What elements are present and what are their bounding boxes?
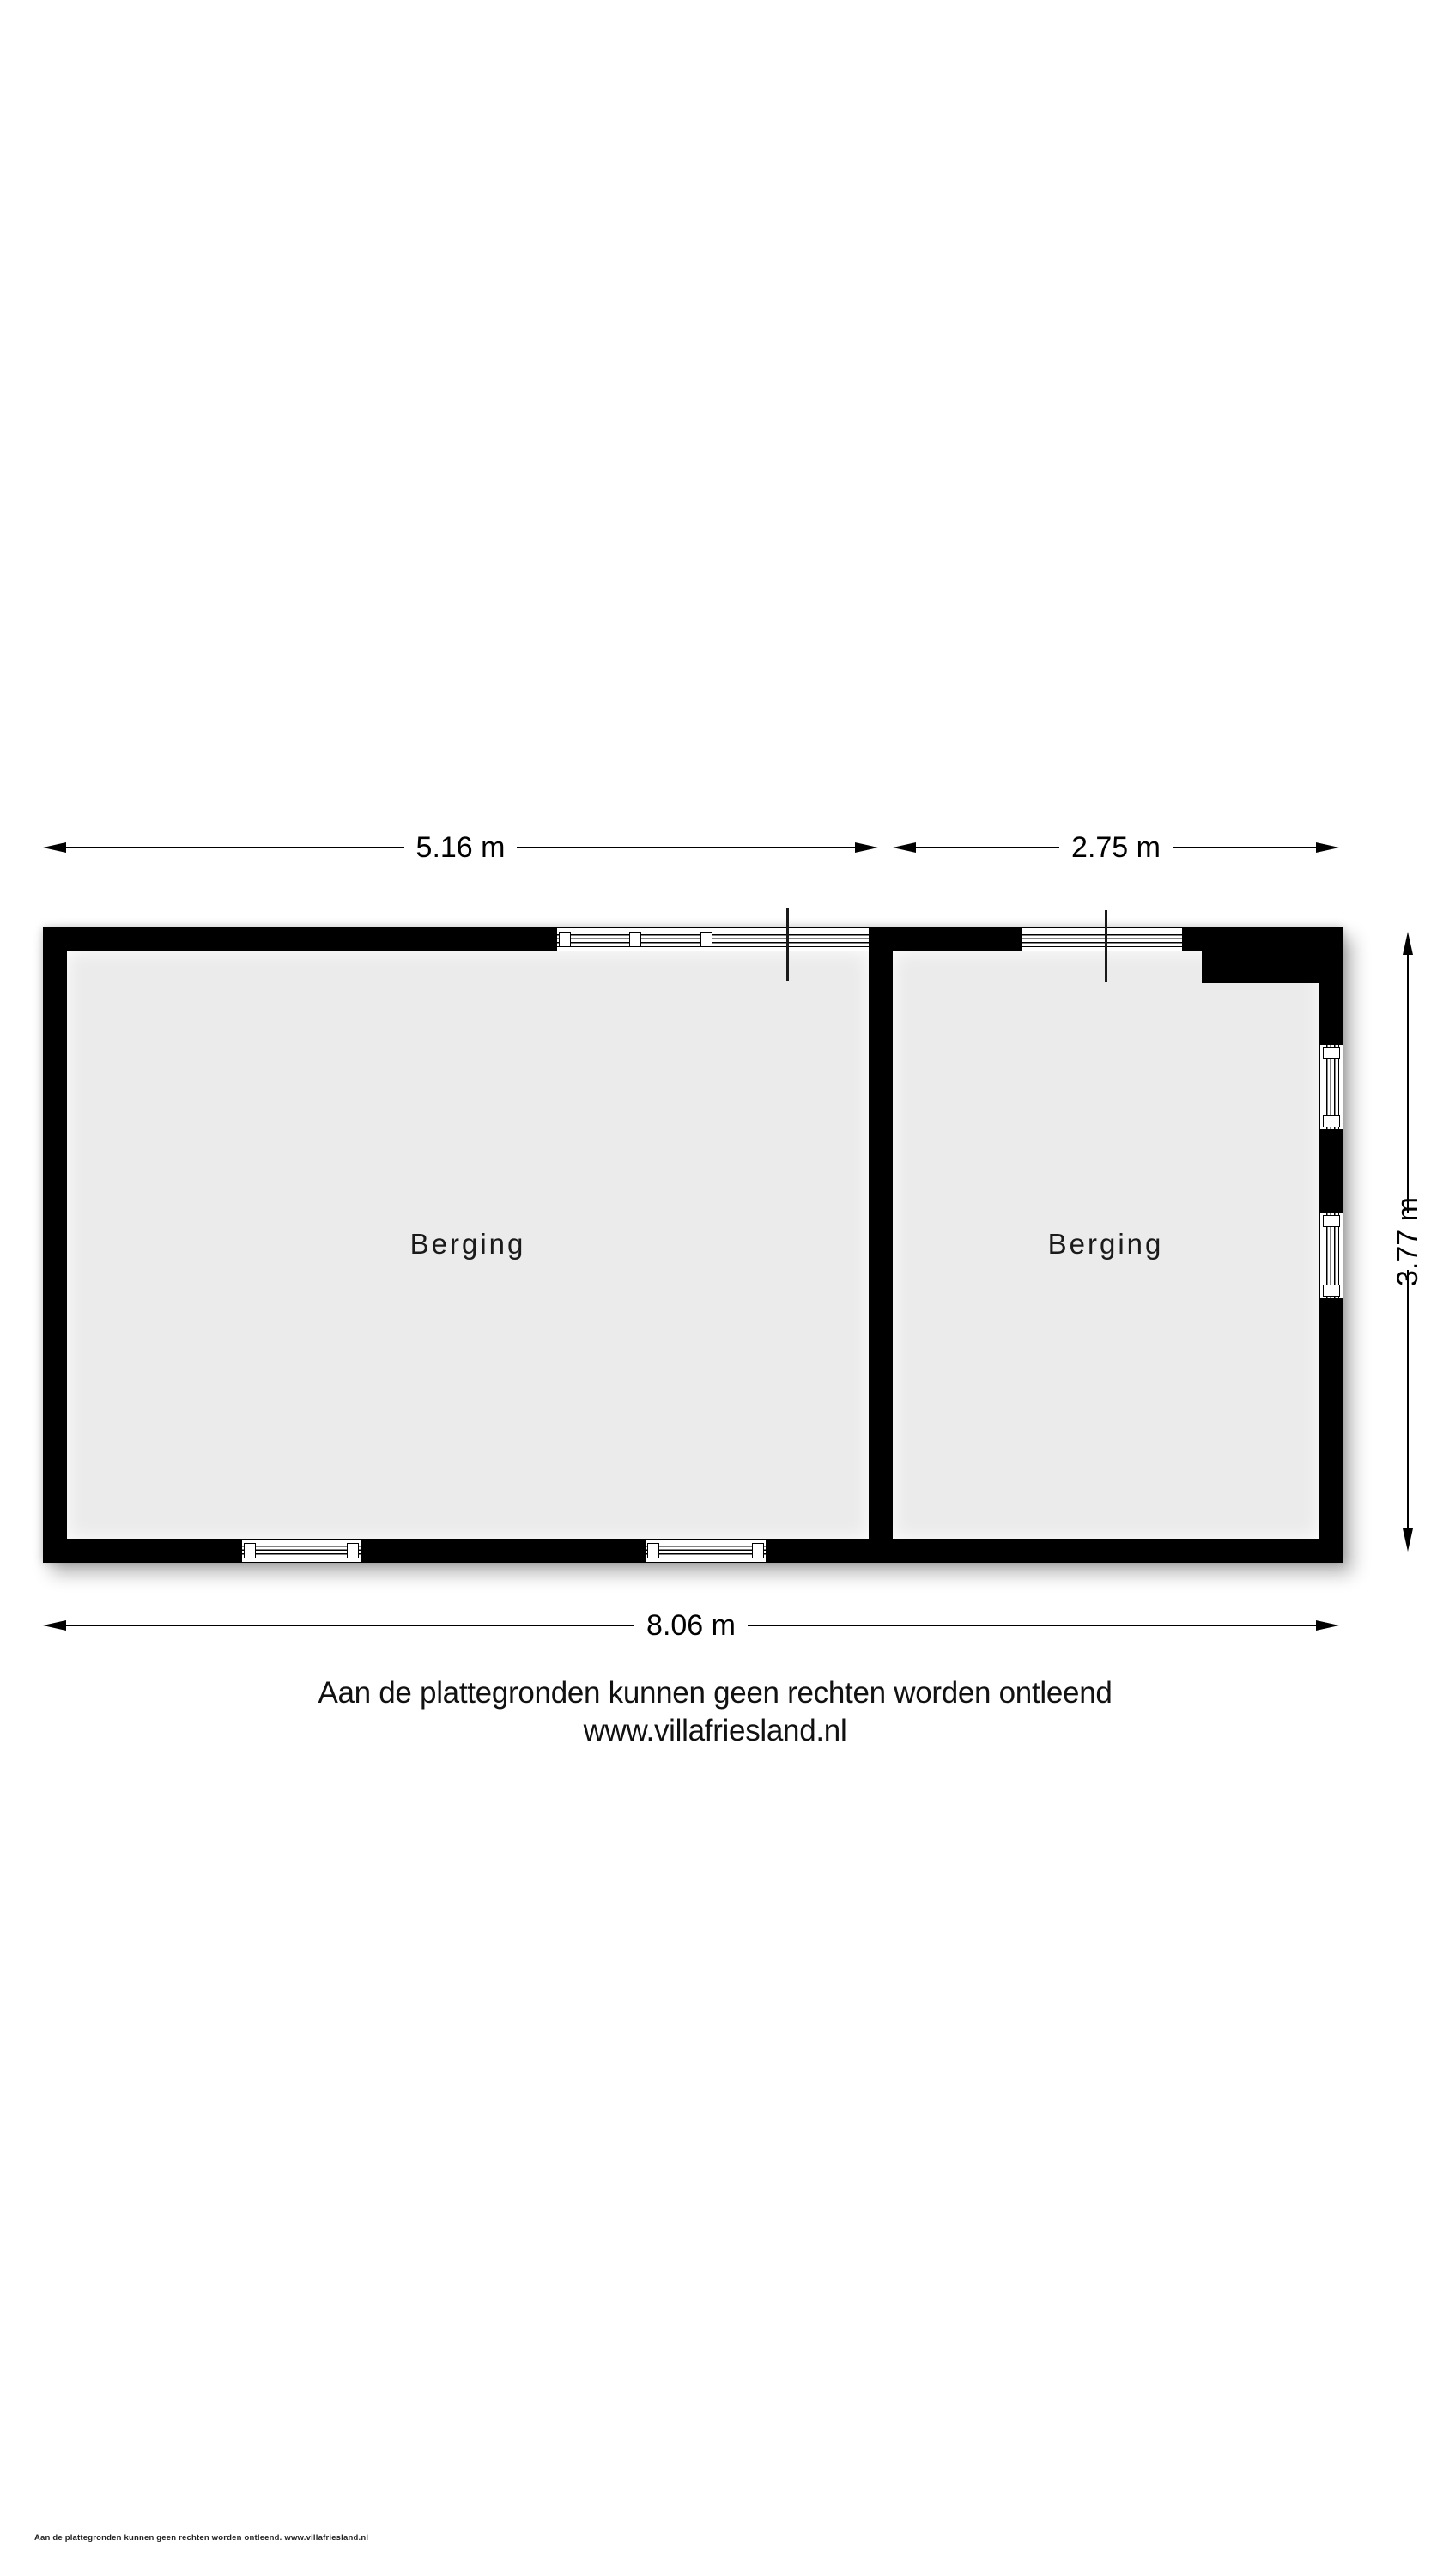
arrow-left-icon [893, 842, 916, 853]
window-mullion [559, 932, 571, 947]
window-mullion [347, 1543, 359, 1558]
window-mullion [1323, 1285, 1340, 1297]
arrow-up-icon [1403, 932, 1413, 955]
window-symbol-right-2 [1319, 1213, 1343, 1298]
window-mullion [629, 932, 641, 947]
dimension-line [66, 847, 404, 848]
dimension-label: 5.16 m [404, 833, 518, 862]
dimension-line [1407, 955, 1409, 1213]
dimension-line [517, 847, 855, 848]
window-symbol-top-right [1022, 927, 1182, 951]
dimension-label: 3.77 m [1379, 1197, 1436, 1286]
window-glazing [646, 1546, 766, 1558]
arrow-left-icon [43, 842, 66, 853]
arrow-right-icon [855, 842, 878, 853]
dimension-bottom: 8.06 m [43, 1607, 1339, 1644]
dimension-line [1407, 1270, 1409, 1528]
dimension-line [916, 847, 1059, 848]
window-symbol-bottom-2 [646, 1539, 766, 1563]
window-mullion [1323, 1215, 1340, 1227]
wall-tick-mark [1105, 910, 1107, 982]
arrow-left-icon [43, 1620, 66, 1631]
wall-tick-mark [786, 908, 789, 981]
dimension-label: 2.75 m [1059, 833, 1173, 862]
window-mullion [752, 1543, 764, 1558]
dimension-right: 3.77 m [1389, 932, 1427, 1552]
window-symbol-right-1 [1319, 1045, 1343, 1129]
window-mullion [647, 1543, 659, 1558]
window-mullion [244, 1543, 256, 1558]
disclaimer-text: Aan de plattegronden kunnen geen rechten… [0, 1674, 1430, 1750]
disclaimer-line1: Aan de plattegronden kunnen geen rechten… [0, 1674, 1430, 1712]
room-label-left: Berging [339, 1228, 597, 1261]
window-symbol-top-left [557, 927, 869, 951]
dimension-line [748, 1625, 1316, 1626]
dimension-line [1173, 847, 1316, 848]
window-mullion [1323, 1047, 1340, 1059]
disclaimer-line2: www.villafriesland.nl [0, 1712, 1430, 1750]
floorplan-page: 5.16 m 2.75 m [0, 0, 1449, 2576]
dimension-top-left: 5.16 m [43, 829, 878, 866]
dimension-label: 8.06 m [634, 1611, 748, 1640]
room-label-right: Berging [977, 1228, 1234, 1261]
dimension-top-right: 2.75 m [893, 829, 1339, 866]
window-glazing [242, 1546, 361, 1558]
wall-notch [1202, 951, 1319, 983]
window-symbol-bottom-1 [242, 1539, 361, 1563]
footer-small-text: Aan de plattegronden kunnen geen rechten… [34, 2533, 368, 2543]
arrow-right-icon [1316, 842, 1339, 853]
arrow-down-icon [1403, 1528, 1413, 1552]
window-mullion [700, 932, 712, 947]
window-mullion [1323, 1115, 1340, 1127]
dimension-line [66, 1625, 634, 1626]
window-glazing [557, 934, 869, 947]
window-glazing [1022, 934, 1182, 947]
arrow-right-icon [1316, 1620, 1339, 1631]
